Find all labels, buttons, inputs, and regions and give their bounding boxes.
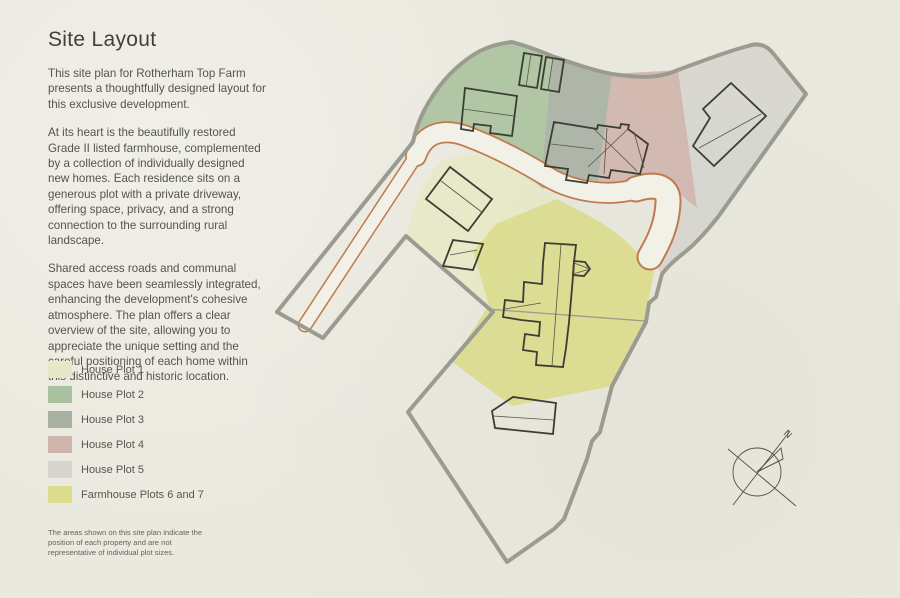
compass-rose (728, 431, 796, 506)
site-plan: N (0, 0, 900, 598)
site-layout-page: { "header": { "title": "Site Layout" }, … (0, 0, 900, 598)
compass-north-label: N (781, 428, 794, 441)
compass-cross-line (728, 449, 796, 506)
compass-arrow-inner (757, 459, 783, 472)
